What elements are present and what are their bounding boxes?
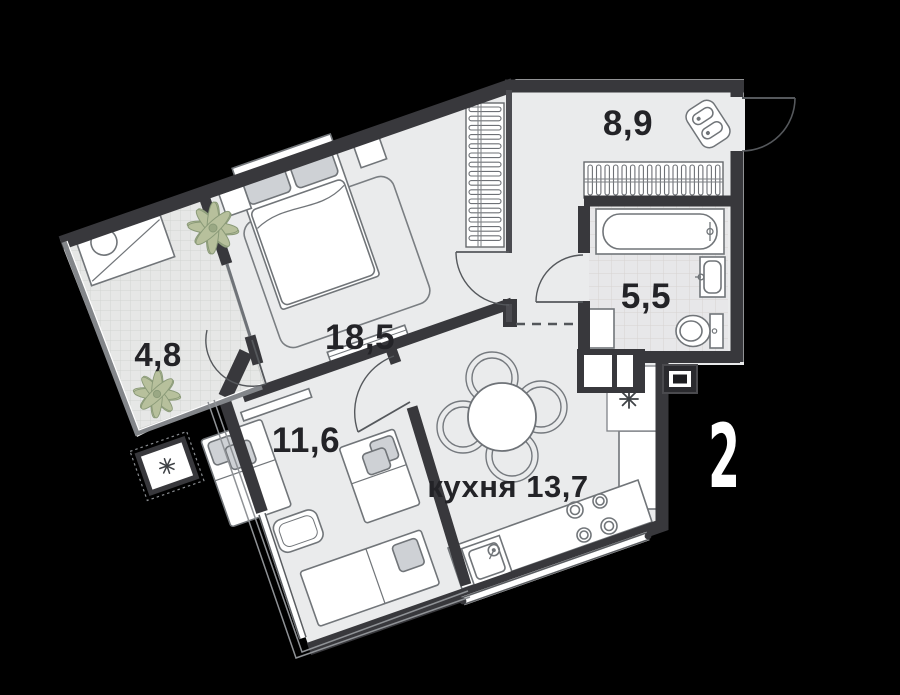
- floor-plan-canvas: 8,9 5,5 18,5 4,8 11,6 кухня 13,7 2: [0, 0, 900, 695]
- bedroom-area-label: 18,5: [325, 318, 395, 357]
- electrical-panel-icon: [663, 365, 697, 393]
- dining-table-icon: [468, 383, 536, 451]
- kitchen-area-label: кухня 13,7: [427, 469, 588, 504]
- wardrobe-icon: [466, 103, 504, 247]
- utility-shaft: [577, 349, 645, 393]
- washer-icon: [587, 309, 614, 348]
- floor-plan: 8,9 5,5 18,5 4,8 11,6 кухня 13,7 2: [0, 0, 900, 695]
- hallway-area-label: 8,9: [603, 104, 653, 143]
- children-room-area-label: 11,6: [272, 421, 340, 460]
- bathroom-area-label: 5,5: [621, 277, 671, 316]
- balcony-area-label: 4,8: [134, 336, 181, 373]
- apartment-number: 2: [708, 405, 740, 508]
- entry-door-icon: [742, 98, 795, 151]
- wardrobe-icon: [584, 162, 723, 198]
- entry-threshold: [731, 97, 745, 151]
